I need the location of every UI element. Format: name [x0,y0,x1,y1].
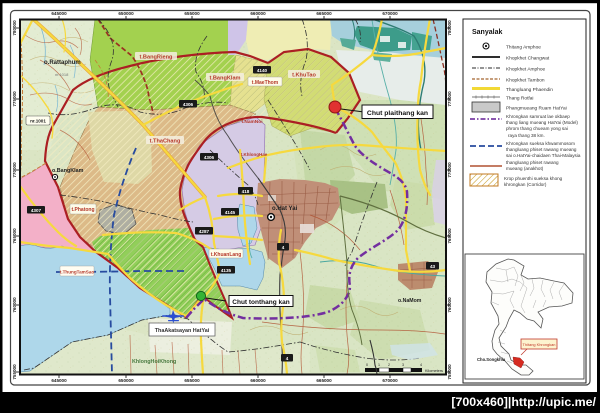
svg-text:650000: 650000 [118,11,134,16]
svg-text:665000: 665000 [316,378,332,383]
svg-text:4135: 4135 [221,268,232,273]
svg-text:Thangluang Phaendin: Thangluang Phaendin [506,87,553,93]
svg-text:mueang (anakhot): mueang (anakhot) [506,166,544,171]
svg-text:sai o.HatYai-chaidaen Thai-Mal: sai o.HatYai-chaidaen Thai-Malaysia [506,153,581,158]
svg-text:t.KhuTao: t.KhuTao [292,72,316,78]
svg-text:418: 418 [242,189,250,194]
svg-text:0: 0 [366,363,368,367]
svg-text:Khopkhet Tambon: Khopkhet Tambon [506,78,545,84]
svg-text:KhlongHoiKhong: KhlongHoiKhong [132,359,176,365]
svg-text:o.NaMom: o.NaMom [398,298,422,304]
svg-text:Thitang Amphoe: Thitang Amphoe [506,45,541,51]
svg-text:Thang Rotfai: Thang Rotfai [506,96,533,102]
svg-text:4145: 4145 [225,210,236,215]
svg-text:t.ThaChang: t.ThaChang [150,138,181,144]
svg-text:t.NamNoi: t.NamNoi [241,119,262,125]
svg-text:655000: 655000 [184,378,200,383]
svg-text:670000: 670000 [382,11,398,16]
svg-text:thangluang phiset rawang muean: thangluang phiset rawang mueang [506,147,577,152]
svg-text:4140: 4140 [257,68,268,73]
svg-text:4287: 4287 [199,229,210,234]
svg-text:t.KhlongHae: t.KhlongHae [241,152,268,157]
svg-text:Phangmueang Ruam HatYai: Phangmueang Ruam HatYai [506,106,567,112]
svg-text:Thitang Khrongkan: Thitang Khrongkan [523,342,556,347]
svg-text:ThaAkatsayan HatYai: ThaAkatsayan HatYai [155,328,210,334]
svg-text:t.BangRieng: t.BangRieng [140,54,174,60]
svg-text:4306: 4306 [183,102,194,107]
svg-text:Khrongkan sueksa khwammosom: Khrongkan sueksa khwammosom [506,141,575,146]
svg-text:Kilometers: Kilometers [425,369,443,373]
svg-text:o.BangKlam: o.BangKlam [52,168,84,174]
svg-text:655000: 655000 [184,11,200,16]
svg-text:670000: 670000 [382,378,398,383]
svg-text:660000: 660000 [250,378,266,383]
svg-text:t.ThungTamSao: t.ThungTamSao [60,269,95,274]
svg-text:khrongkan (Corridor): khrongkan (Corridor) [504,182,547,187]
svg-text:phrom thang chueam yong sai: phrom thang chueam yong sai [506,126,568,131]
svg-text:665000: 665000 [316,11,332,16]
svg-text:o.Rattaphum: o.Rattaphum [44,60,81,66]
svg-text:raya thang 38 km.: raya thang 38 km. [508,133,545,138]
svg-text:4: 4 [286,356,289,361]
svg-text:2: 2 [388,363,390,367]
svg-text:645000: 645000 [51,11,67,16]
svg-text:t.KhuanLang: t.KhuanLang [211,252,242,258]
svg-text:thangluang phiset rawang: thangluang phiset rawang [506,160,559,165]
svg-text:650000: 650000 [118,378,134,383]
svg-text:thang liang mueang HatYai (Mod: thang liang mueang HatYai (Model) [506,120,578,125]
svg-text:4: 4 [282,245,285,250]
svg-text:Sanyalak: Sanyalak [472,29,502,36]
svg-text:3: 3 [402,363,404,367]
svg-text:t.BangKlam: t.BangKlam [209,75,240,81]
svg-text:[700x460]|http://upic.me/: [700x460]|http://upic.me/ [451,395,596,409]
svg-text:Khrongkan samruat lae okbaep: Khrongkan samruat lae okbaep [506,114,570,119]
svg-text:Cho.Songkhla: Cho.Songkhla [477,357,506,362]
svg-text:Krop phuenthi sueksa khong: Krop phuenthi sueksa khong [504,176,563,181]
svg-text:t.Phatong: t.Phatong [71,207,94,213]
svg-text:Khopkhet Amphoe: Khopkhet Amphoe [506,67,546,73]
svg-text:Chut tonthang kan: Chut tonthang kan [232,299,289,306]
svg-text:nr.1001: nr.1001 [30,119,46,124]
svg-text:nr.1018: nr.1018 [55,72,69,77]
svg-text:Chut plaithang kan: Chut plaithang kan [367,110,428,117]
svg-text:660000: 660000 [250,11,266,16]
svg-text:Khopkhet Changwat: Khopkhet Changwat [506,56,550,62]
svg-text:645000: 645000 [51,378,67,383]
svg-text:43: 43 [430,264,436,269]
svg-text:o.Hat Yai: o.Hat Yai [272,206,298,212]
svg-text:1: 1 [378,363,380,367]
svg-text:4: 4 [420,363,422,367]
svg-text:4307: 4307 [31,208,42,213]
svg-text:4306: 4306 [204,155,215,160]
svg-text:t.MaeThom: t.MaeThom [252,80,279,86]
